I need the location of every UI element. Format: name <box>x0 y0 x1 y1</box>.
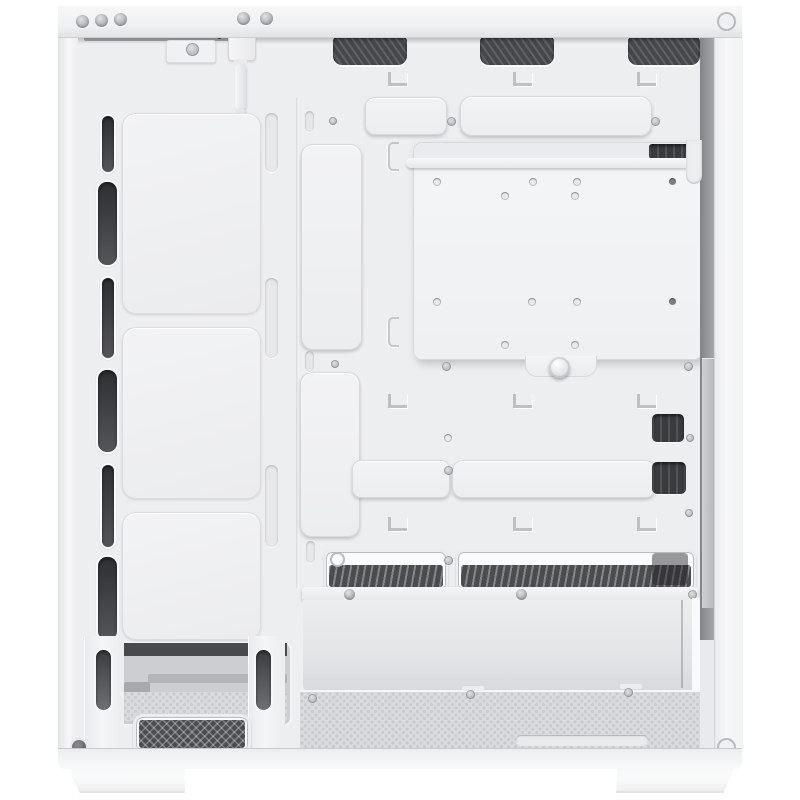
rear-screw <box>685 509 693 517</box>
front-fan-plate-1 <box>122 113 261 314</box>
mount-hole <box>528 298 536 306</box>
cable-cover-L-vertical <box>300 372 360 537</box>
cable-hook <box>513 517 532 531</box>
mount-hole <box>571 341 579 349</box>
case-foot-left <box>64 768 186 793</box>
mount-hole <box>501 341 509 349</box>
tray-screw <box>331 360 339 368</box>
bracket-screw <box>186 43 199 56</box>
shroud-vent-shadow-end <box>652 553 688 585</box>
cable-hook <box>637 72 656 86</box>
tray-slot <box>306 541 315 563</box>
mount-hole <box>573 298 581 306</box>
cable-cover-mid-long <box>452 460 656 498</box>
mounting-plate <box>413 142 703 360</box>
fan-rail-slot <box>265 278 278 358</box>
floor-slot <box>516 735 648 746</box>
shroud-screw <box>444 556 453 565</box>
top-corner-screw <box>717 12 736 31</box>
tie-bracket <box>388 317 399 347</box>
plate-cross-rail <box>406 158 708 168</box>
rail-rivet <box>344 589 355 600</box>
tray-slot <box>305 351 314 372</box>
rear-screw <box>686 434 694 442</box>
front-panel-edge <box>58 37 79 748</box>
cable-cutout-open <box>652 462 686 494</box>
cover-screw <box>444 466 453 475</box>
mount-hole-filled <box>669 298 676 305</box>
mount-hole <box>573 178 581 186</box>
tray-hole <box>444 434 452 442</box>
front-mesh <box>139 720 245 748</box>
expansion-slot-strip <box>702 358 714 608</box>
plate-screw <box>442 362 451 371</box>
fan-rail-slot <box>265 465 278 547</box>
front-fan-plate-2 <box>122 327 261 499</box>
front-vent-slot-narrow <box>102 116 114 172</box>
cable-cover-top-small <box>365 97 447 135</box>
cover-screw <box>651 117 660 126</box>
top-rivet <box>76 15 89 28</box>
cable-hook <box>513 72 532 86</box>
rear-cable-cutout <box>652 414 684 442</box>
cover-screw <box>447 117 456 126</box>
cable-cover-top-long <box>460 96 652 136</box>
rear-corner-bracket <box>686 140 702 184</box>
column-seam <box>296 98 299 588</box>
floor-screw <box>466 690 475 699</box>
cable-hook <box>388 517 407 531</box>
front-vent-slot-wide <box>98 557 117 640</box>
rear-inner-edge <box>681 600 683 688</box>
top-rivet <box>237 12 250 25</box>
front-fan-plate-3 <box>122 512 261 640</box>
fan-rail-slot <box>265 113 278 172</box>
front-panel-cable-body <box>235 64 246 110</box>
psu-compartment <box>303 600 699 693</box>
floor-screw <box>308 694 317 703</box>
front-vent-slot-wide <box>98 370 117 452</box>
mount-hole-filled <box>669 178 676 185</box>
cable-cover-L-arm <box>352 460 450 498</box>
mount-hole <box>571 192 579 200</box>
cable-hook <box>388 394 407 408</box>
tray-screw <box>329 117 337 125</box>
top-rivet <box>260 12 273 25</box>
top-rivet <box>114 13 127 26</box>
top-rail <box>58 4 742 38</box>
rear-gap-lower <box>700 640 714 748</box>
floor-screw <box>624 688 633 697</box>
cable-hook <box>637 394 656 408</box>
front-vent-slot-narrow <box>102 278 114 358</box>
mount-hole <box>501 192 509 200</box>
mount-hole <box>433 178 441 186</box>
pc-case <box>0 0 800 800</box>
shroud-rail <box>302 587 698 600</box>
rear-wall <box>714 37 743 748</box>
front-vent-slot-narrow <box>102 465 114 547</box>
mount-hole <box>529 178 537 186</box>
plate-screw <box>684 362 693 371</box>
tray-slot <box>305 111 314 132</box>
cable-hook <box>388 72 407 86</box>
top-fan-vent-3 <box>628 37 700 65</box>
strap-slot <box>96 650 111 710</box>
case-foot-right <box>616 768 738 793</box>
thumbscrew <box>549 357 570 378</box>
top-fan-vent-1 <box>333 37 407 65</box>
front-vent-slot-wide <box>98 182 117 265</box>
shroud-mesh <box>329 565 443 587</box>
top-fan-vent-2 <box>480 37 554 65</box>
cable-hook <box>513 394 532 408</box>
cable-cover-vertical <box>301 144 362 350</box>
strap-slot <box>256 650 271 710</box>
cable-hook <box>637 517 656 531</box>
rail-rivet <box>516 589 527 600</box>
product-photo-canvas: { "scene": { "subject": "White mid-tower… <box>0 0 800 800</box>
mount-hole <box>433 298 441 306</box>
top-rivet <box>95 14 108 27</box>
bottom-rail <box>58 748 742 769</box>
shroud-latch <box>330 552 345 567</box>
tie-bracket <box>388 142 399 171</box>
